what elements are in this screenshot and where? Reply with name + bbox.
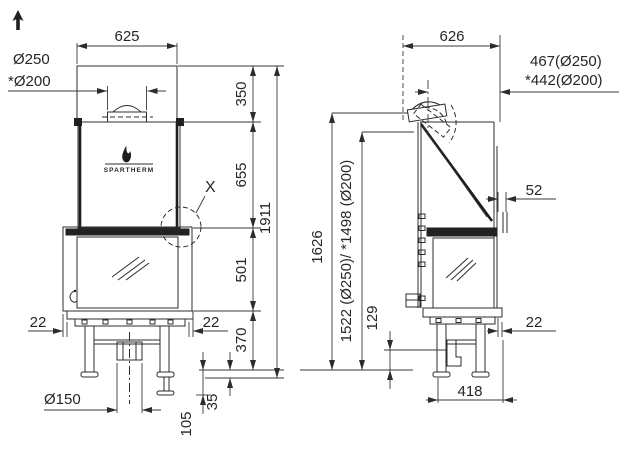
flame-icon <box>122 146 131 162</box>
dim-flue-dia-alt: *Ø200 <box>8 73 51 90</box>
front-hood-casing <box>77 66 177 122</box>
dim-overall-height-side: 1626 <box>309 230 326 263</box>
dim-intake-dia: Ø150 <box>44 391 81 408</box>
foot-right <box>157 372 174 377</box>
side-leg-front <box>437 324 446 372</box>
flue-collar-side <box>407 99 447 122</box>
dim-door-height: 501 <box>233 257 250 282</box>
rail-rollers <box>419 214 425 301</box>
dim-flue-offset-alt: *442(Ø200) <box>525 72 603 89</box>
side-leg-rear <box>476 324 485 372</box>
front-door-frame <box>63 227 192 311</box>
door-handle <box>70 291 77 302</box>
side-glass-reflection <box>446 258 476 281</box>
side-base-plate <box>423 308 502 317</box>
base-mounts <box>82 320 173 324</box>
fireplace-technical-drawing: SPARTHERM <box>0 0 624 460</box>
dim-flue-offset: 467(Ø250) <box>530 53 602 70</box>
dim-firebox-height: 655 <box>233 162 250 187</box>
front-door-top-band <box>66 229 189 235</box>
flue-rotation-arc <box>449 105 456 143</box>
dim-flue-dia: Ø250 <box>13 51 50 68</box>
side-view-dimensions: 626 467(Ø250) *442(Ø200) 52 1626 1522 (Ø… <box>300 28 619 403</box>
front-leg-right <box>160 326 169 372</box>
detail-leader <box>196 196 205 213</box>
front-base-plate <box>67 311 193 319</box>
dim-foot-adjust: 35 <box>204 394 221 411</box>
foot-right-spindle <box>164 377 169 391</box>
dim-hood-height: 350 <box>233 81 250 106</box>
dim-rear-overhang: 22 <box>526 314 543 331</box>
technical-drawing-page: SPARTHERM <box>0 0 624 460</box>
side-foot-front <box>433 372 450 377</box>
flue-collar-front-dome <box>113 106 141 113</box>
front-corner-bracket-left <box>74 118 82 126</box>
spartherm-logo: SPARTHERM <box>104 146 155 174</box>
dim-overhang-right: 22 <box>203 314 220 331</box>
dim-depth: 626 <box>439 28 464 45</box>
brand-text: SPARTHERM <box>104 167 155 174</box>
dim-overhang-left: 22 <box>30 314 47 331</box>
dim-flue-axis-height: 1522 (Ø250)/ *1498 (Ø200) <box>338 160 355 343</box>
dim-front-width: 625 <box>114 28 139 45</box>
dim-base-depth: 418 <box>457 383 482 400</box>
up-arrow-icon <box>13 10 24 30</box>
door-lift-diagonal-thin <box>421 124 487 217</box>
foot-right-extended-disc <box>157 391 174 395</box>
side-view <box>406 99 507 377</box>
detail-marker-label: X <box>205 179 216 196</box>
dim-rear-gap: 52 <box>526 182 543 199</box>
side-foot-rear <box>472 372 489 377</box>
foot-left <box>81 372 98 377</box>
side-base-mounts <box>436 319 481 323</box>
dim-intake-height: 129 <box>364 305 381 330</box>
dim-foot-clearance: 105 <box>178 411 195 436</box>
side-door-top-band <box>427 228 497 236</box>
dim-overall-height-front: 1911 <box>257 202 274 234</box>
front-firebox <box>78 122 180 228</box>
front-view: SPARTHERM <box>63 66 216 404</box>
dim-base-height: 370 <box>233 327 250 352</box>
side-glass <box>433 238 494 308</box>
front-glass-reflection <box>112 257 149 280</box>
front-leg-left <box>85 326 94 372</box>
door-handle-pin <box>74 290 76 292</box>
